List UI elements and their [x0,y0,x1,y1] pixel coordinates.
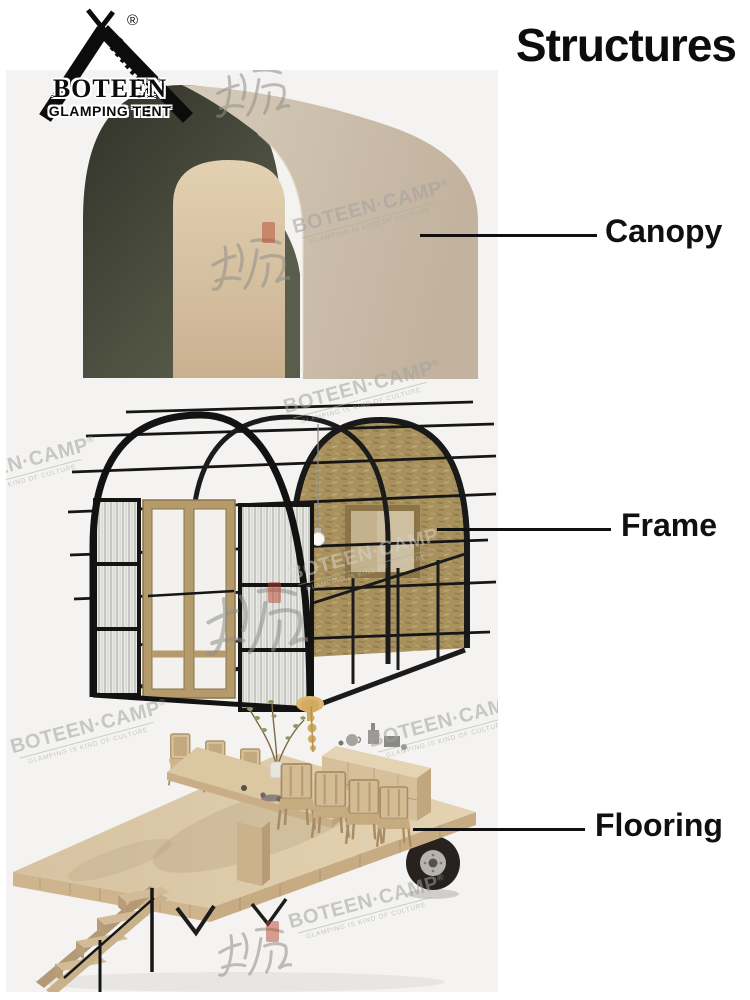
leader-line-flooring [413,828,585,831]
part-label-flooring: Flooring [595,809,723,841]
flooring-illustration [6,690,498,992]
ground-shadow [35,972,445,992]
canopy-inner-shadow [285,230,300,378]
part-label-canopy: Canopy [605,215,722,247]
curtain-panel-left [95,500,139,695]
page-title: Structures [516,22,736,68]
leader-line-canopy [420,234,597,237]
product-structure-diagram: BOTEEN·CAMP® GLAMPING IS KIND OF CULTURE… [0,0,750,1000]
seal-stamp-icon [268,582,281,603]
canopy-end-wall [173,160,285,378]
frame-illustration [68,392,498,722]
part-label-frame: Frame [621,509,717,541]
leader-line-frame [437,528,611,531]
logo-subtitle: GLAMPING TENT [49,104,171,118]
logo-title: BOTEEN [53,76,167,102]
seal-stamp-icon [262,222,275,243]
photo-background: BOTEEN·CAMP® GLAMPING IS KIND OF CULTURE… [6,70,498,992]
seal-stamp-icon [266,921,279,942]
curtain-panel-right [240,505,312,710]
registered-mark: ® [127,12,138,29]
brand-logo: ® BOTEEN GLAMPING TENT [15,0,205,132]
kitchen-appliances [339,723,408,750]
floor-lamp [301,699,319,752]
double-door [143,500,235,698]
